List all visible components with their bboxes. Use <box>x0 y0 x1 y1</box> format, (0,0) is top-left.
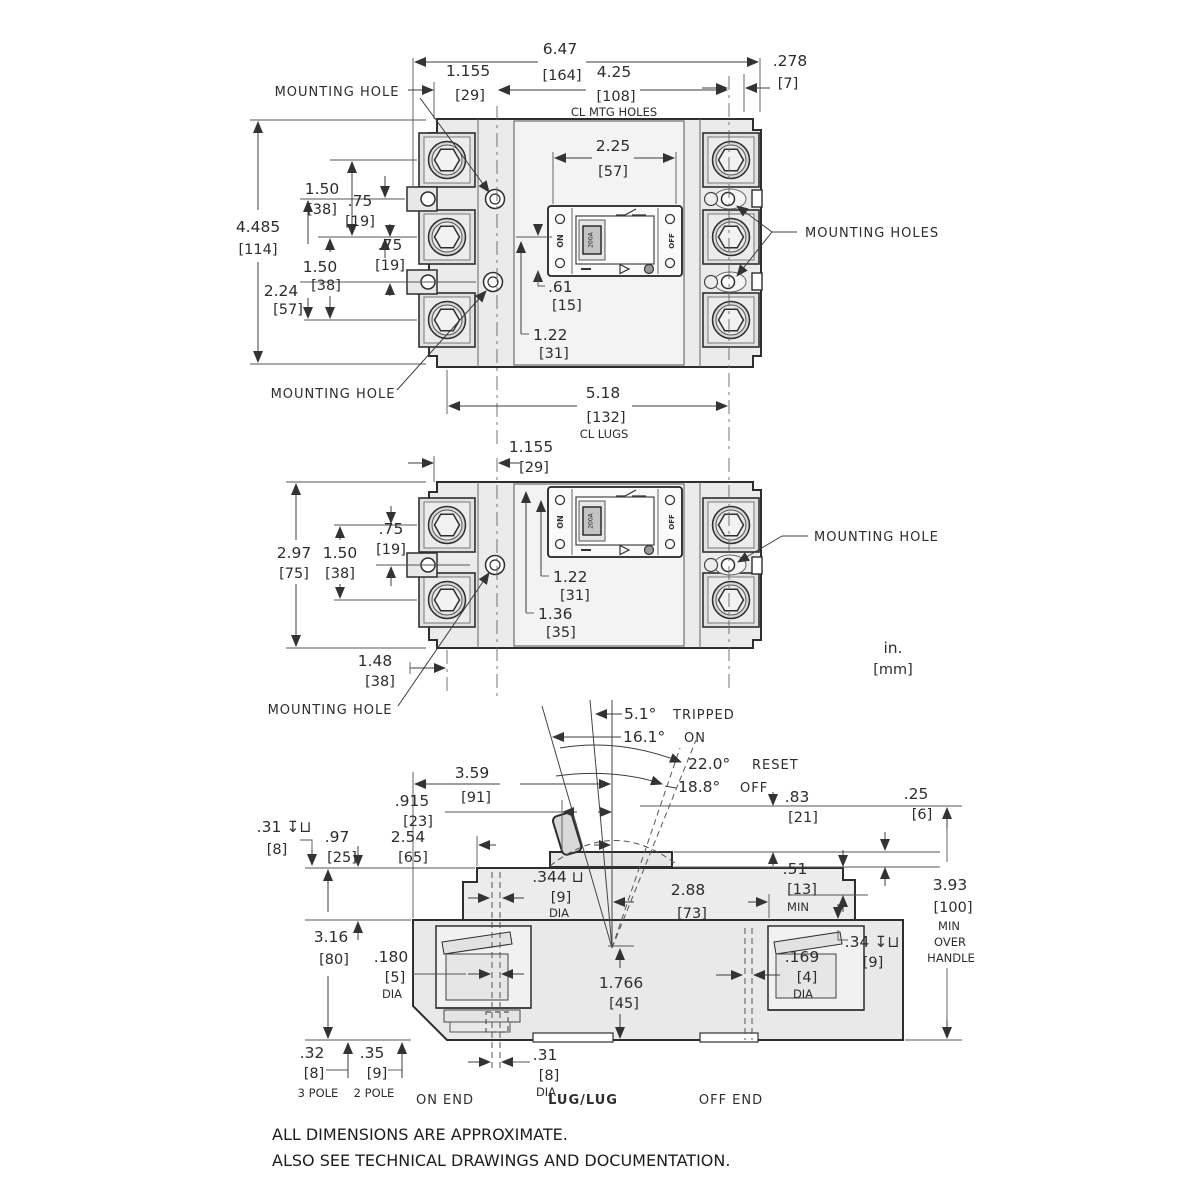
dim-cap-thickness-mm: [6] <box>912 807 933 823</box>
footer-notes: ALL DIMENSIONS ARE APPROXIMATE. ALSO SEE… <box>272 1125 730 1170</box>
angle-tripped-label: TRIPPED <box>672 708 735 723</box>
dim-hole-dia-right-mm: [4] <box>797 970 818 986</box>
breaker-handle <box>552 812 583 856</box>
dim-edge-offset-in: .278 <box>773 52 808 70</box>
footer-line1: ALL DIMENSIONS ARE APPROXIMATE. <box>272 1125 568 1144</box>
dim-overall-width-mm: [164] <box>543 68 582 84</box>
dim-hole-dia-mm: [5] <box>385 970 406 986</box>
dim-handle-height-mm: [21] <box>788 810 818 826</box>
dim-cbore-in: .344 ⊔ <box>532 868 584 886</box>
dim-handle-cl-mm: [91] <box>461 790 491 806</box>
mounting-hole-top-label: MOUNTING HOLE <box>275 85 400 100</box>
dim-min-over-handle-note2: OVER <box>934 935 966 949</box>
dim-edge-offset-mm: [7] <box>778 76 799 92</box>
dim-hole-dia-in: .180 <box>374 948 409 966</box>
dim-recess-left-mm: [8] <box>267 842 288 858</box>
dim-mid-height-mm: [75] <box>279 566 309 582</box>
off-end-label: OFF END <box>699 1093 763 1108</box>
dim-handle-offset-side-in: .915 <box>395 792 430 810</box>
dim-overall-height-mm: [114] <box>239 242 278 258</box>
dim-foot-3pole-mm: [8] <box>304 1066 325 1082</box>
dim-cbore-note: DIA <box>549 906 569 920</box>
dim-handle-cl-in: 3.59 <box>455 764 490 782</box>
lug-lug-label: LUG/LUG <box>548 1093 618 1108</box>
dim-body-height-in: 3.16 <box>314 928 349 946</box>
dim-min-over-handle-note3: HANDLE <box>927 951 975 965</box>
dim-pitch-bottom-in: 1.50 <box>303 258 338 276</box>
angle-off-label: OFF <box>740 781 768 796</box>
dim-faceplate-offset-mm: [31] <box>539 346 569 362</box>
dim-clearance-mm: [13] <box>787 882 817 898</box>
dim-lug-span-in: 5.18 <box>586 384 621 402</box>
dim-mid-pitch-in: 1.50 <box>323 544 358 562</box>
dim-min-over-handle-in: 3.93 <box>933 876 968 894</box>
dim-hole-offset-top-in: .75 <box>348 192 373 210</box>
dim-mid-lug-offset-in: 1.48 <box>358 652 393 670</box>
dim-foot-2pole-in: .35 <box>360 1044 385 1062</box>
dim-hole-dia-bottom-mm: [8] <box>539 1068 560 1084</box>
dim-mtg-offset-mm: [29] <box>455 88 485 104</box>
dim-hole-to-lug-in: 2.24 <box>264 282 299 300</box>
angle-tripped-value: 5.1° <box>624 705 656 723</box>
dim-min-over-handle-note1: MIN <box>938 919 960 933</box>
dim-overall-width-in: 6.47 <box>543 40 578 58</box>
dim-mid-pitch-mm: [38] <box>325 566 355 582</box>
mid-mounting-hole-left-label: MOUNTING HOLE <box>268 703 393 718</box>
mounting-holes-right-label: MOUNTING HOLES <box>805 226 939 241</box>
dim-foot-3pole-in: .32 <box>300 1044 325 1062</box>
dim-pitch-bottom-mm: [38] <box>311 278 341 294</box>
dim-mid-hole-offset-mm: [19] <box>376 542 406 558</box>
dim-hole-dia-note: DIA <box>382 987 402 1001</box>
dim-hole-dia-right-in: .169 <box>785 948 820 966</box>
dim-mtg-offset-in: 1.155 <box>446 62 490 80</box>
dim-min-over-handle-mm: [100] <box>934 900 973 916</box>
dim-mid-mtg-offset-in: 1.155 <box>509 438 553 456</box>
side-view <box>413 700 903 1072</box>
dim-hole-offset-bottom-in: .75 <box>378 236 403 254</box>
dim-window-width-mm: [57] <box>598 164 628 180</box>
angle-on-label: ON <box>684 731 706 746</box>
dim-cover-width-in: 2.54 <box>391 828 426 846</box>
dim-mid-window-offset-in: 1.22 <box>553 568 588 586</box>
angle-reset-value: 22.0° <box>688 755 730 773</box>
dim-lug-span-mm: [132] <box>587 410 626 426</box>
dim-handle-height-in: .83 <box>785 788 810 806</box>
dim-cover-height-mm: [25] <box>327 850 357 866</box>
angle-off-value: 18.8° <box>678 778 720 796</box>
dim-faceplate-offset-in: 1.22 <box>533 326 568 344</box>
mounting-hole-bottom-label: MOUNTING HOLE <box>271 387 396 402</box>
angle-reset-label: RESET <box>752 758 799 773</box>
dim-hole-to-lug-mm: [57] <box>273 302 303 318</box>
dim-cover-width-mm: [65] <box>398 850 428 866</box>
dim-mid-window-offset-mm: [31] <box>560 588 590 604</box>
dim-mtg-span-note: CL MTG HOLES <box>571 105 657 119</box>
dim-mid-height-in: 2.97 <box>277 544 312 562</box>
dim-mtg-span-in: 4.25 <box>597 63 632 81</box>
dim-hole-dia-right-note: DIA <box>793 987 813 1001</box>
breaker-dimension-drawing: ON OFF 200A <box>0 0 1200 1200</box>
dim-overall-height-in: 4.485 <box>236 218 280 236</box>
dim-window-width-in: 2.25 <box>596 137 631 155</box>
units-inches: in. <box>883 639 902 657</box>
dim-recess-right-in: .34 ↧⊔ <box>845 933 900 951</box>
dim-base-width-in: 2.88 <box>671 881 706 899</box>
dim-foot-2pole-note: 2 POLE <box>354 1086 395 1100</box>
dim-pitch-top-mm: [38] <box>307 202 337 218</box>
dim-hole-offset-top-mm: [19] <box>345 214 375 230</box>
footer-line2: ALSO SEE TECHNICAL DRAWINGS AND DOCUMENT… <box>272 1151 730 1170</box>
angle-on-value: 16.1° <box>623 728 665 746</box>
mid-mounting-hole-right-label: MOUNTING HOLE <box>814 530 939 545</box>
dim-clearance-note: MIN <box>787 900 809 914</box>
dim-mid-faceplate-offset-mm: [35] <box>546 625 576 641</box>
dim-hole-offset-bottom-mm: [19] <box>375 258 405 274</box>
units-mm: [mm] <box>873 662 913 678</box>
top-view-3pole <box>407 76 762 452</box>
dim-handle-offset-in: .61 <box>548 278 573 296</box>
dim-lug-span-note: CL LUGS <box>580 427 629 441</box>
dim-foot-2pole-mm: [9] <box>367 1066 388 1082</box>
dim-cbore-mm: [9] <box>551 890 572 906</box>
dim-mid-faceplate-offset-in: 1.36 <box>538 605 573 623</box>
dim-recess-right-mm: [9] <box>863 955 884 971</box>
dim-base-width-mm: [73] <box>677 906 707 922</box>
dim-mtg-span-mm: [108] <box>597 89 636 105</box>
on-end-label: ON END <box>416 1093 474 1108</box>
dim-handle-offset-mm: [15] <box>552 298 582 314</box>
dim-base-cl-mm: [45] <box>609 996 639 1012</box>
dim-recess-left-in: .31 ↧⊔ <box>257 818 312 836</box>
dim-clearance-in: .51 <box>783 860 808 878</box>
dim-hole-dia-bottom-in: .31 <box>533 1046 558 1064</box>
dim-body-height-mm: [80] <box>319 952 349 968</box>
dim-cap-thickness-in: .25 <box>904 785 929 803</box>
dim-mid-hole-offset-in: .75 <box>379 520 404 538</box>
dim-foot-3pole-note: 3 POLE <box>298 1086 339 1100</box>
dim-pitch-top-in: 1.50 <box>305 180 340 198</box>
dim-mid-lug-offset-mm: [38] <box>365 674 395 690</box>
dim-base-cl-in: 1.766 <box>599 974 643 992</box>
dim-cover-height-in: .97 <box>325 828 350 846</box>
dim-mid-mtg-offset-mm: [29] <box>519 460 549 476</box>
